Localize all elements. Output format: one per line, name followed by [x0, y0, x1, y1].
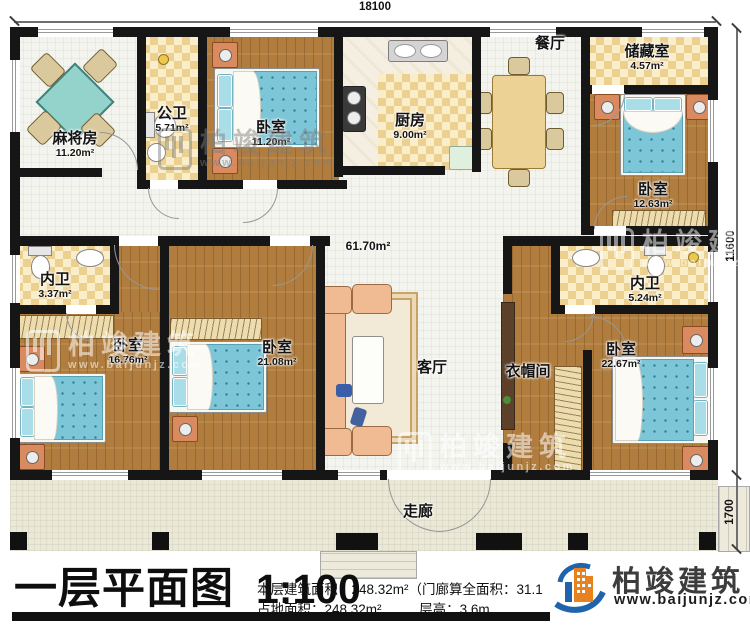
window — [708, 252, 718, 302]
lamp-icon — [688, 252, 699, 263]
dining-table — [492, 75, 546, 169]
window — [642, 27, 704, 37]
stove-icon — [342, 86, 366, 132]
nightstand — [682, 326, 710, 354]
wall — [10, 168, 102, 177]
window — [202, 470, 282, 480]
toilet-icon — [647, 255, 665, 277]
wall — [334, 27, 343, 177]
room-label-public-bath: 公卫5.71m² — [144, 106, 200, 134]
floor-plan-page: 麻将房11.20m² 公卫5.71m² 卧室11.20m² 厨房9.00m² 餐… — [0, 0, 750, 627]
armchair — [352, 284, 392, 314]
brand-logo: 柏竣建筑 www.baijunjz.com — [550, 556, 746, 622]
living-room-area: 61.70m² — [330, 240, 406, 253]
dimension-right-main: 11600 — [725, 221, 737, 271]
room-label-bedroom3: 卧室22.67m² — [588, 342, 654, 370]
wall — [503, 443, 512, 480]
window — [590, 470, 690, 480]
chair — [508, 169, 530, 187]
room-label-bath1: 内卫3.37m² — [24, 272, 86, 300]
washbasin-icon — [572, 249, 600, 267]
dimension-line — [14, 21, 716, 23]
cushion — [336, 384, 352, 397]
double-bed — [18, 373, 106, 443]
nightstand — [19, 444, 45, 470]
room-label-corridor: 走廊 — [386, 504, 450, 521]
room-label-dining: 餐厅 — [518, 36, 582, 53]
title-underline — [12, 612, 560, 621]
room-label-bedroom-left: 卧室16.76m² — [96, 338, 160, 366]
wall — [160, 236, 169, 475]
nightstand — [212, 148, 238, 174]
armchair — [352, 426, 392, 456]
nightstand — [19, 346, 45, 372]
plant-icon — [503, 396, 511, 404]
wall — [316, 236, 325, 475]
porch-column — [152, 532, 169, 550]
porch-column — [10, 532, 27, 550]
brand-logo-icon — [550, 558, 608, 614]
washbasin-icon — [147, 143, 166, 162]
window — [708, 100, 718, 162]
dimension-top: 18100 — [330, 1, 420, 13]
wall — [503, 236, 712, 246]
room-label-storage: 储藏室4.57m² — [602, 44, 692, 72]
window — [338, 470, 380, 480]
chair — [546, 92, 564, 114]
wall — [10, 27, 718, 37]
window — [38, 27, 113, 37]
porch-column — [336, 533, 378, 550]
window — [10, 60, 20, 132]
porch-column — [568, 533, 588, 550]
wall — [10, 305, 119, 314]
room-label-bath2: 内卫5.24m² — [612, 276, 678, 304]
wall — [581, 27, 590, 235]
window — [10, 255, 20, 303]
porch-column — [699, 532, 716, 550]
window — [52, 470, 128, 480]
wardrobe — [554, 366, 582, 474]
coffee-table — [352, 336, 384, 404]
wall — [551, 236, 560, 314]
room-label-kitchen: 厨房9.00m² — [378, 113, 442, 141]
room-label-living: 客厅 — [400, 360, 464, 377]
wall — [503, 236, 512, 294]
wardrobe — [170, 318, 262, 340]
dimension-line — [736, 28, 738, 550]
nightstand — [172, 416, 198, 442]
plan-title: 一层平面图 — [14, 554, 234, 616]
room-label-bedroom-mid: 卧室21.08m² — [244, 340, 310, 368]
chair — [508, 57, 530, 75]
window — [708, 368, 718, 440]
plan-title-block: 一层平面图 1:100 — [14, 554, 361, 616]
window — [230, 27, 318, 37]
wall — [472, 27, 481, 172]
room-label-bedroom2: 卧室12.63m² — [620, 182, 686, 210]
brand-url: www.baijunjz.com — [614, 592, 750, 608]
lamp-icon — [158, 54, 169, 65]
dimension-right-porch: 1700 — [724, 490, 736, 534]
room-label-mahjong: 麻将房11.20m² — [28, 131, 122, 159]
double-bed — [620, 94, 686, 176]
room-label-cloakroom: 衣帽间 — [490, 364, 566, 381]
washbasin-icon — [76, 249, 104, 267]
room-label-bedroom1: 卧室11.20m² — [238, 120, 304, 148]
porch-column — [476, 533, 522, 550]
chair — [546, 128, 564, 150]
kitchen-sink-icon — [388, 40, 448, 62]
wall — [343, 166, 445, 175]
window — [10, 368, 20, 438]
nightstand — [212, 42, 238, 68]
plan-scale: 1:100 — [256, 566, 361, 613]
